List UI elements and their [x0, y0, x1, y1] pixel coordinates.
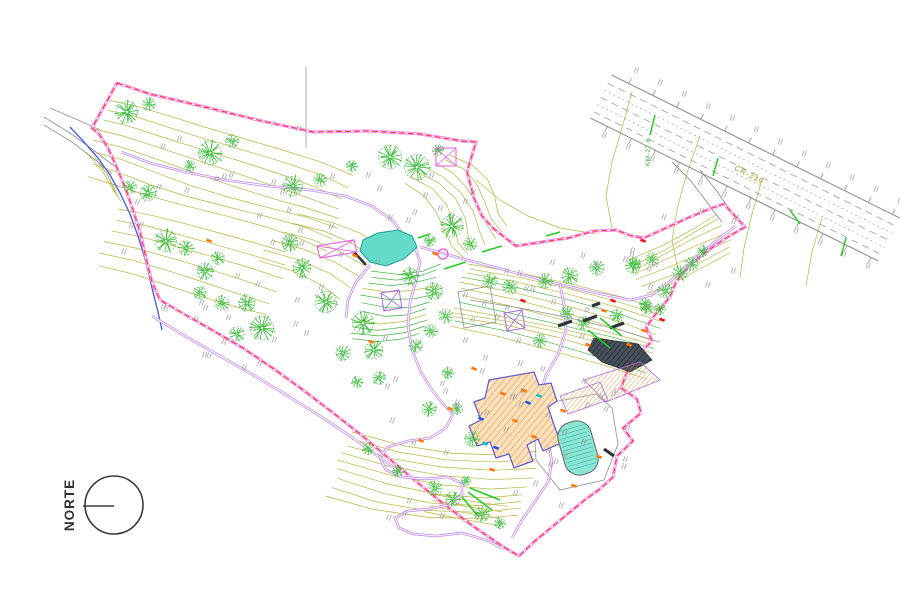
- generated-layers: [44, 66, 900, 556]
- swimming-pool: [554, 417, 602, 478]
- survey-gray-layer: [44, 66, 738, 490]
- tree-symbol: [425, 282, 443, 300]
- cad-drawing-frame: KM-27.6 CR-339 NORTE: [0, 0, 900, 597]
- tree-symbol: [178, 241, 195, 256]
- tree-symbol: [423, 325, 438, 337]
- tree-symbol: [351, 376, 363, 388]
- hatched-terrace: [560, 382, 608, 414]
- tree-symbol: [364, 341, 384, 359]
- contour-band-pond-fan: [351, 264, 441, 342]
- tree-symbol: [215, 295, 229, 310]
- road-name-label: CR-339: [733, 164, 765, 186]
- tree-symbol: [422, 401, 437, 417]
- tree-symbol: [424, 236, 436, 247]
- tree-symbol: [314, 174, 327, 187]
- site-plan-svg: KM-27.6 CR-339 NORTE: [0, 0, 900, 597]
- tree-symbol: [538, 274, 554, 289]
- tree-symbol: [185, 160, 196, 172]
- tree-symbol: [463, 238, 477, 250]
- north-arrow: NORTE: [62, 476, 143, 534]
- tree-symbol: [373, 372, 386, 385]
- tree-symbol: [336, 346, 351, 361]
- road-km-label: KM-27.6: [645, 138, 652, 166]
- tree-symbol: [140, 185, 158, 201]
- tree-symbol: [197, 263, 214, 280]
- tree-symbol: [404, 154, 431, 180]
- tree-symbol: [378, 145, 402, 169]
- tree-symbol: [346, 161, 357, 172]
- tree-symbol: [114, 99, 139, 124]
- tree-symbol: [439, 309, 453, 323]
- contour-lines-layer: [86, 92, 822, 525]
- tree-symbol: [440, 214, 463, 238]
- tree-symbol: [230, 327, 245, 341]
- tree-symbol: [315, 290, 338, 313]
- crossed-structure-box: [436, 148, 456, 166]
- tree-symbol: [589, 261, 605, 276]
- structures-layer: [354, 230, 660, 479]
- tree-symbol: [646, 253, 658, 266]
- tree-symbol: [351, 311, 375, 335]
- contour-band-nw-edge: [86, 152, 121, 202]
- tree-symbol: [249, 315, 275, 340]
- north-circle: [85, 476, 143, 534]
- tree-symbol: [194, 286, 207, 299]
- tree-symbol: [281, 175, 303, 198]
- north-label: NORTE: [62, 479, 77, 531]
- spot-elevation-labels-layer: [121, 125, 738, 520]
- tree-symbol: [442, 367, 453, 379]
- tree-symbol: [494, 517, 505, 529]
- contour-band-arm: [628, 214, 730, 294]
- tree-symbol: [562, 267, 578, 284]
- tree-symbol: [155, 228, 176, 253]
